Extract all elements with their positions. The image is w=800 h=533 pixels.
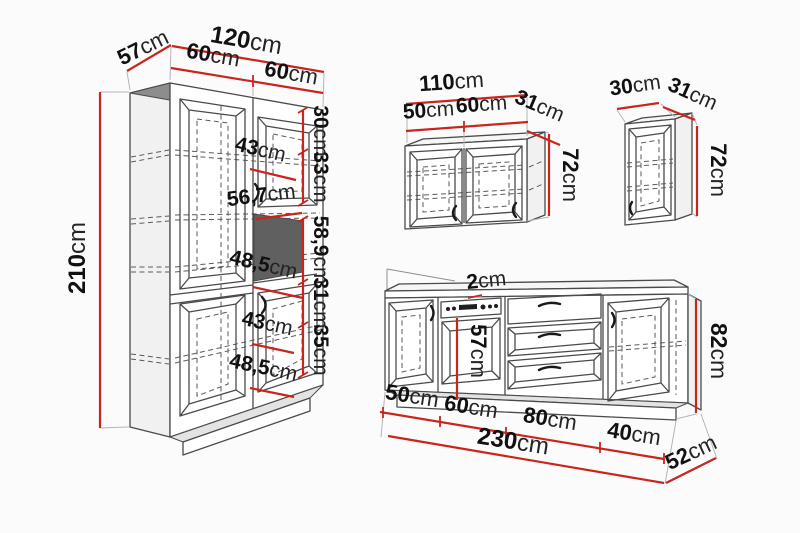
oven-knob-icon: [452, 307, 456, 311]
dim-wall-double-depth: 31cm: [511, 85, 567, 126]
dim-wall-double-width: 110cm: [418, 67, 484, 96]
dim-tall-lower-compartment: 31cm: [309, 277, 332, 328]
dim-base-depth: 52cm: [661, 430, 720, 475]
dim-wall-single-width: 30cm: [608, 71, 662, 101]
wall-single-width-dim-line: [617, 103, 659, 109]
wall-double-doors-dim-line: [406, 122, 528, 131]
oven-knob-icon: [494, 304, 498, 308]
dim-wall-single-height: 72cm: [706, 143, 731, 197]
dim-tall-top-compartment: 30cm: [309, 105, 332, 156]
dim-base-section-4: 40cm: [606, 417, 663, 450]
dim-countertop-thickness: 2cm: [465, 267, 507, 294]
drawing-canvas: 120cm 57cm 60cm 60cm 210cm 30cm 33cm 56,…: [0, 0, 800, 533]
dim-wall-double-right-door: 60cm: [455, 91, 508, 118]
wall-single-side-face: [675, 113, 692, 220]
dim-tall-upper-door-height: 33cm: [309, 151, 332, 202]
dim-wall-single-depth: 31cm: [665, 73, 721, 115]
oven-knob-icon: [446, 307, 450, 311]
dim-oven-height: 57cm: [466, 324, 491, 378]
dim-tall-depth: 57cm: [113, 24, 172, 70]
oven-knob-icon: [488, 305, 492, 309]
wall-double-side-face: [527, 132, 545, 222]
dim-tall-lower-door-height: 35cm: [309, 324, 332, 375]
dim-wall-double-height: 72cm: [558, 148, 583, 202]
dim-tall-height: 210cm: [64, 222, 91, 294]
wall-cabinet-double: 110cm 50cm 60cm 31cm 72cm: [402, 67, 583, 229]
base-unit: 2cm 57cm 82cm 50cm 60cm 80cm 40cm 230cm …: [380, 267, 732, 484]
base-right-side-face: [688, 294, 701, 410]
kitchen-dimension-diagram: 120cm 57cm 60cm 60cm 210cm 30cm 33cm 56,…: [0, 0, 800, 533]
dim-wall-double-left-door: 50cm: [402, 97, 455, 124]
tall-cabinet: 120cm 57cm 60cm 60cm 210cm 30cm 33cm 56,…: [64, 21, 332, 455]
oven-display: [459, 304, 477, 310]
dim-base-height: 82cm: [706, 323, 732, 379]
wall-cabinet-single: 30cm 31cm 72cm: [608, 71, 731, 225]
oven-knob-icon: [481, 305, 486, 310]
dim-tall-niche-height: 58,9cm: [309, 216, 332, 285]
tall-cabinet-side-face: [130, 83, 170, 437]
